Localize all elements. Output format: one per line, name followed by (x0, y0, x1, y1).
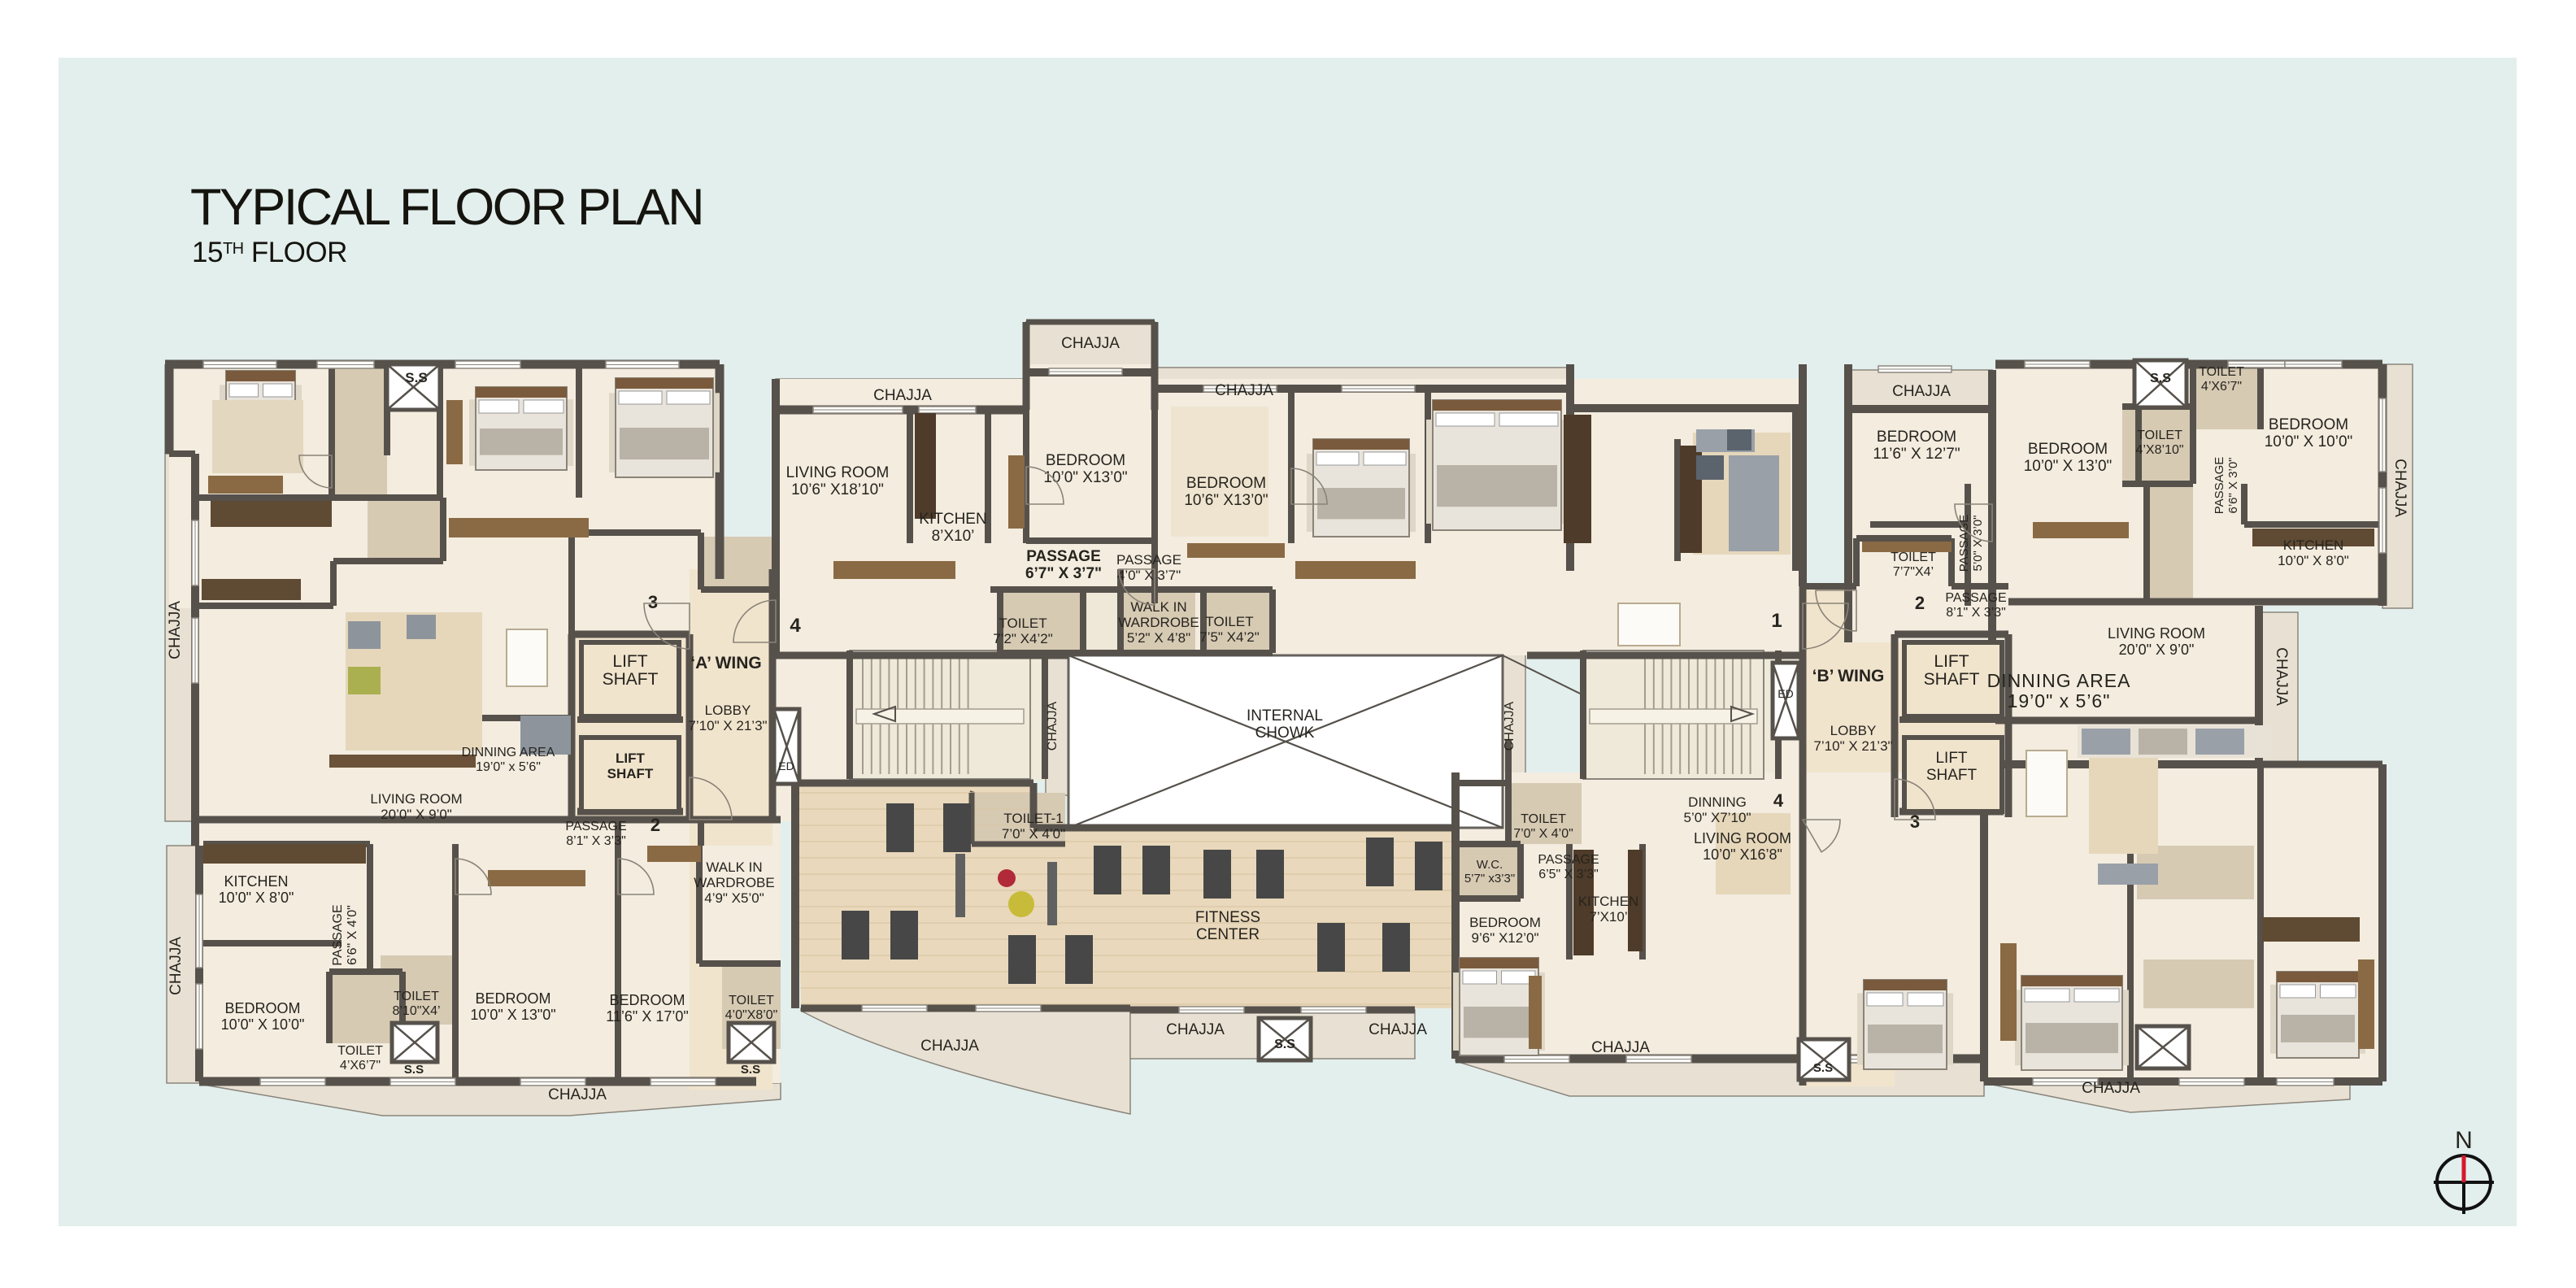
svg-text:S.S: S.S (404, 1063, 424, 1077)
svg-text:CHAJJA: CHAJJA (168, 937, 185, 995)
svg-text:CHAJJA: CHAJJA (1215, 382, 1273, 399)
svg-text:TOILET7’5" X4’2": TOILET7’5" X4’2" (1199, 614, 1260, 645)
svg-text:ED: ED (1778, 687, 1793, 700)
svg-text:LIVING ROOM20’0" X 9’0": LIVING ROOM20’0" X 9’0" (2108, 625, 2205, 658)
svg-text:CHAJJA: CHAJJA (920, 1038, 979, 1055)
svg-text:PASSAGE8’1" X 3’3": PASSAGE8’1" X 3’3" (1945, 591, 2006, 620)
svg-text:PASSAGE8’1" X 3’3": PASSAGE8’1" X 3’3" (565, 820, 626, 848)
svg-text:BEDROOM11’6" X 17’0": BEDROOM11’6" X 17’0" (606, 992, 689, 1025)
svg-text:PASSAGE4’0" X 3’7": PASSAGE4’0" X 3’7" (1116, 552, 1181, 583)
svg-text:TOILET4’X8’10": TOILET4’X8’10" (2135, 429, 2183, 457)
svg-text:TOILET7’2" X4’2": TOILET7’2" X4’2" (993, 616, 1053, 646)
svg-text:PASSAGE6’6" X 4’0": PASSAGE6’6" X 4’0" (331, 904, 359, 965)
svg-text:PASSAGE6’6" X 3’0": PASSAGE6’6" X 3’0" (2213, 457, 2240, 515)
svg-text:DINNING5’0" X7’10": DINNING5’0" X7’10" (1684, 794, 1751, 825)
svg-text:2: 2 (1915, 593, 1925, 613)
svg-text:CHAJJA: CHAJJA (167, 601, 184, 659)
svg-text:PASSAGE6’7" X 3’7": PASSAGE6’7" X 3’7" (1025, 548, 1102, 582)
svg-text:PASSAGE6’5" X 3’3": PASSAGE6’5" X 3’3" (1538, 853, 1599, 881)
svg-text:ED: ED (778, 759, 794, 772)
svg-text:CHAJJA: CHAJJA (1368, 1021, 1427, 1038)
svg-text:CHAJJA: CHAJJA (2082, 1080, 2140, 1097)
svg-text:TOILET-17’0" X 4’0": TOILET-17’0" X 4’0" (1002, 811, 1065, 842)
svg-text:LIVING ROOM10’0" X16’8": LIVING ROOM10’0" X16’8" (1694, 830, 1791, 863)
svg-text:KITCHEN10’0" X 8’0": KITCHEN10’0" X 8’0" (2278, 537, 2349, 568)
svg-text:CHAJJA: CHAJJA (873, 387, 932, 404)
svg-text:TOILET4’0"X8’0": TOILET4’0"X8’0" (725, 994, 778, 1022)
svg-text:BEDROOM10’0" X 13"0": BEDROOM10’0" X 13"0" (470, 990, 555, 1023)
svg-text:2: 2 (651, 815, 660, 835)
svg-text:S.S: S.S (741, 1063, 760, 1077)
svg-text:LIVING ROOM20’0" X 9’0": LIVING ROOM20’0" X 9’0" (370, 791, 462, 822)
svg-text:S.S: S.S (1274, 1038, 1295, 1051)
svg-text:3: 3 (1910, 812, 1920, 832)
svg-text:CHAJJA: CHAJJA (1166, 1021, 1225, 1038)
svg-text:BEDROOM10’0" X 13’0": BEDROOM10’0" X 13’0" (2024, 441, 2113, 475)
svg-text:CHAJJA: CHAJJA (1503, 701, 1516, 751)
svg-text:BEDROOM10’6" X13’0": BEDROOM10’6" X13’0" (1184, 475, 1268, 509)
svg-text:TYPICAL FLOOR PLAN: TYPICAL FLOOR PLAN (190, 179, 703, 236)
svg-text:CHAJJA: CHAJJA (1892, 383, 1951, 400)
svg-text:TOILET7’0" X 4’0": TOILET7’0" X 4’0" (1513, 812, 1573, 841)
svg-text:3: 3 (648, 592, 658, 612)
svg-text:4: 4 (1773, 790, 1784, 811)
svg-text:INTERNALCHOWK: INTERNALCHOWK (1247, 707, 1323, 742)
svg-text:CHAJJA: CHAJJA (548, 1086, 607, 1103)
svg-text:TOILET8’10"X4’: TOILET8’10"X4’ (392, 990, 440, 1018)
svg-text:BEDROOM9’6" X12’0": BEDROOM9’6" X12’0" (1469, 915, 1541, 946)
svg-text:TOILET4’X6’7": TOILET4’X6’7" (2199, 365, 2244, 394)
svg-text:KITCHEN10’0" X 8’0": KITCHEN10’0" X 8’0" (219, 873, 294, 906)
svg-text:TOILET4’X6’7": TOILET4’X6’7" (337, 1044, 383, 1073)
svg-text:N: N (2455, 1127, 2473, 1154)
svg-text:CHAJJA: CHAJJA (1591, 1039, 1650, 1056)
svg-text:‘B’ WING: ‘B’ WING (1812, 667, 1885, 685)
svg-text:CHAJJA: CHAJJA (1046, 701, 1060, 751)
svg-text:1: 1 (1771, 610, 1782, 632)
svg-text:S.S: S.S (405, 370, 427, 385)
svg-text:DINNING AREA19’0" x 5’6": DINNING AREA19’0" x 5’6" (1987, 670, 2131, 711)
svg-text:‘A’ WING: ‘A’ WING (690, 654, 762, 672)
svg-text:LIVING ROOM10’6" X18’10": LIVING ROOM10’6" X18’10" (786, 464, 890, 498)
svg-text:4: 4 (790, 615, 801, 637)
svg-text:CHAJJA: CHAJJA (2391, 459, 2408, 517)
svg-text:BEDROOM11’6" X 12’7": BEDROOM11’6" X 12’7" (1873, 429, 1960, 463)
svg-text:CHAJJA: CHAJJA (2273, 647, 2290, 706)
svg-text:BEDROOM10’0" X 10’0": BEDROOM10’0" X 10’0" (221, 1000, 305, 1033)
svg-text:S.S: S.S (1813, 1061, 1833, 1075)
svg-text:S.S: S.S (2150, 372, 2171, 385)
svg-text:PASSAGE5’0" X 3’0": PASSAGE5’0" X 3’0" (1957, 515, 1985, 572)
svg-text:FITNESSCENTER: FITNESSCENTER (1195, 909, 1260, 943)
svg-text:15TH FLOOR: 15TH FLOOR (192, 237, 347, 268)
svg-text:CHAJJA: CHAJJA (1061, 335, 1120, 352)
svg-text:TOILET7’7"X4’: TOILET7’7"X4’ (1891, 550, 1936, 579)
svg-text:BEDROOM10’0" X 10’0": BEDROOM10’0" X 10’0" (2265, 416, 2353, 450)
